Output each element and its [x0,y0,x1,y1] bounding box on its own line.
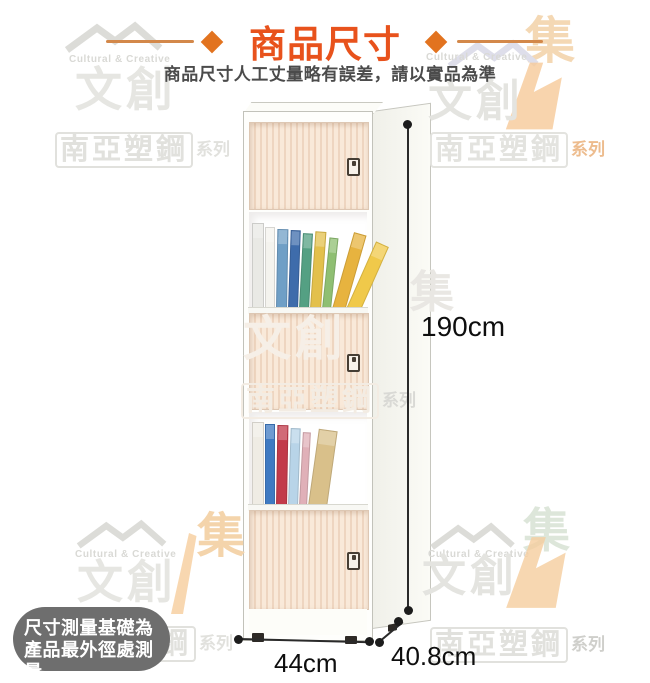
dimension-dot [404,606,413,615]
books-row [252,223,361,309]
watermark-series-suffix: 系列 [199,634,233,653]
book-spine [276,425,288,506]
book-spine [252,422,264,506]
watermark-collect-char: 集 [197,513,245,561]
cabinet-door-top [249,122,369,210]
books-row [252,422,328,506]
book-spine [252,223,264,309]
watermark-series-box: 南亞塑鋼 [55,132,193,168]
house-roof-watermark-icon [75,520,167,548]
cabinet-front [243,111,373,641]
book-spine [308,429,338,509]
watermark-brand-en: Cultural & Creative [75,549,176,560]
watermark-series-suffix: 系列 [571,140,605,159]
watermark-brand-zh: 文創 [422,555,518,599]
watermark-series-suffix: 系列 [196,140,230,159]
door-keyhole-icon [352,357,356,362]
brand-logo-watermark-icon [166,527,200,617]
brand-logo-watermark-icon [492,525,577,620]
watermark-series-box: 南亞塑鋼 [430,132,568,168]
book-spine [265,424,275,506]
house-roof-watermark-icon [428,523,516,549]
book-spine [265,227,275,309]
width-dimension-label: 44cm [274,648,338,679]
dimension-dot [394,617,403,626]
dimension-dot [365,637,374,646]
watermark-series-suffix: 系列 [571,635,605,654]
watermark-series: 南亞塑鋼系列 [430,126,605,168]
note-line-2: 產品最外徑處測量 [24,639,170,683]
dimension-dot [375,638,384,647]
cabinet-base [249,609,367,635]
cabinet-open-shelf-2 [249,412,367,507]
cabinet-side-panel [372,103,431,629]
depth-dimension-label: 40.8cm [391,641,476,672]
disclaimer-text: 商品尺寸人工丈量略有誤差，請以實品為準 [0,60,650,85]
cabinet-open-shelf-1 [249,212,367,310]
book-spine [276,229,288,309]
title-rule-right [457,40,543,43]
watermark-brand-en: Cultural & Creative [428,549,529,560]
note-line-1: 尺寸測量基礎為 [24,617,170,639]
door-handle-icon [347,552,360,570]
watermark-series: 南亞塑鋼系列 [55,126,230,168]
measurement-note-badge: 尺寸測量基礎為 產品最外徑處測量 [13,607,170,671]
dimension-dot [234,635,243,644]
door-keyhole-icon [352,555,356,560]
height-dimension-label: 190cm [421,311,505,343]
door-handle-icon [347,158,360,176]
height-dimension-line [407,125,409,611]
header: 商品尺寸 商品尺寸人工丈量略有誤差，請以實品為準 [0,0,650,95]
cabinet-door-middle [249,313,369,410]
door-keyhole-icon [352,161,356,166]
dimension-dot [403,120,412,129]
watermark-collect-char: 集 [523,507,570,554]
product-dimension-image: Cultural & Creative 文創 南亞塑鋼系列 集 Cultural… [0,0,650,683]
watermark-brand-zh: 文創 [77,559,177,605]
cabinet-door-bottom [249,510,369,610]
door-handle-icon [347,354,360,372]
